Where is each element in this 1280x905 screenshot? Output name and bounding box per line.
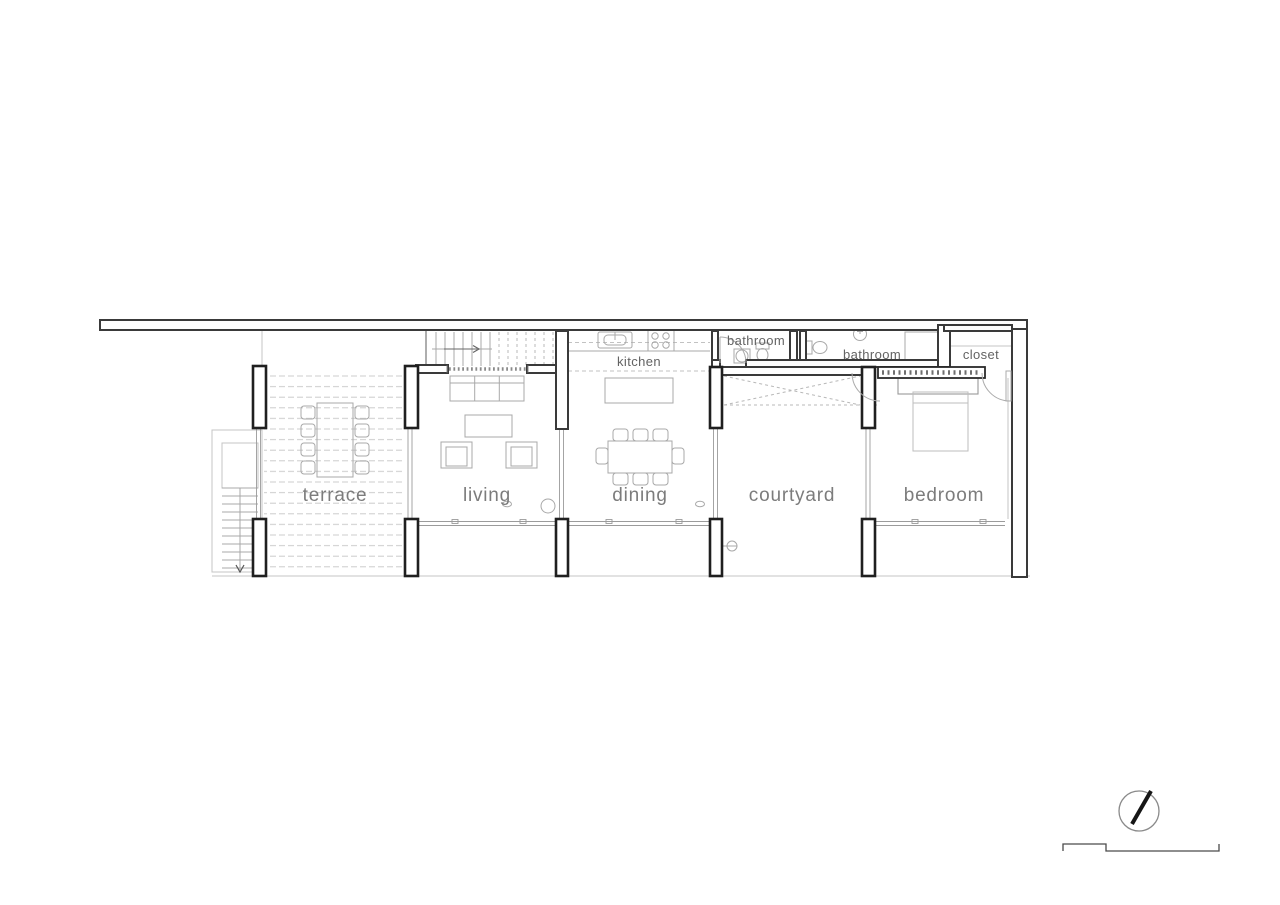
dining-table [596, 429, 684, 485]
courtyard-void-marks [712, 376, 877, 405]
scale-bar [1063, 844, 1219, 851]
room-label-bathroom-1: bathroom [727, 333, 785, 348]
stove-icon [648, 330, 674, 351]
toilet-icon [806, 341, 827, 354]
living-window-sill [447, 366, 528, 373]
floor-plan-canvas: terrace living dining courtyard bedroom … [0, 0, 1280, 905]
armchair [441, 442, 472, 468]
room-label-bedroom: bedroom [904, 485, 985, 506]
room-label-terrace: terrace [303, 485, 368, 506]
room-label-dining: dining [612, 485, 668, 506]
north-arrow-icon [1119, 791, 1159, 831]
armchair [506, 442, 537, 468]
courtyard-tap-icon [723, 541, 737, 551]
interior-stairs [426, 331, 553, 367]
bed [898, 378, 978, 451]
room-label-closet: closet [963, 347, 999, 362]
coffee-table [465, 415, 512, 437]
stair-up-arrow-icon [444, 346, 479, 353]
kitchen-sink-icon [598, 332, 632, 348]
sofa [450, 376, 524, 401]
room-label-bathroom-2: bathroom [843, 347, 901, 362]
room-label-kitchen: kitchen [617, 354, 661, 369]
closet-door [982, 371, 1011, 401]
wardrobe [878, 367, 985, 378]
room-label-living: living [463, 485, 511, 506]
room-label-courtyard: courtyard [749, 485, 835, 506]
kitchen-island [605, 378, 673, 403]
floor-plan-drawing: terrace living dining courtyard bedroom … [0, 0, 1280, 905]
floor-decor [503, 499, 705, 513]
